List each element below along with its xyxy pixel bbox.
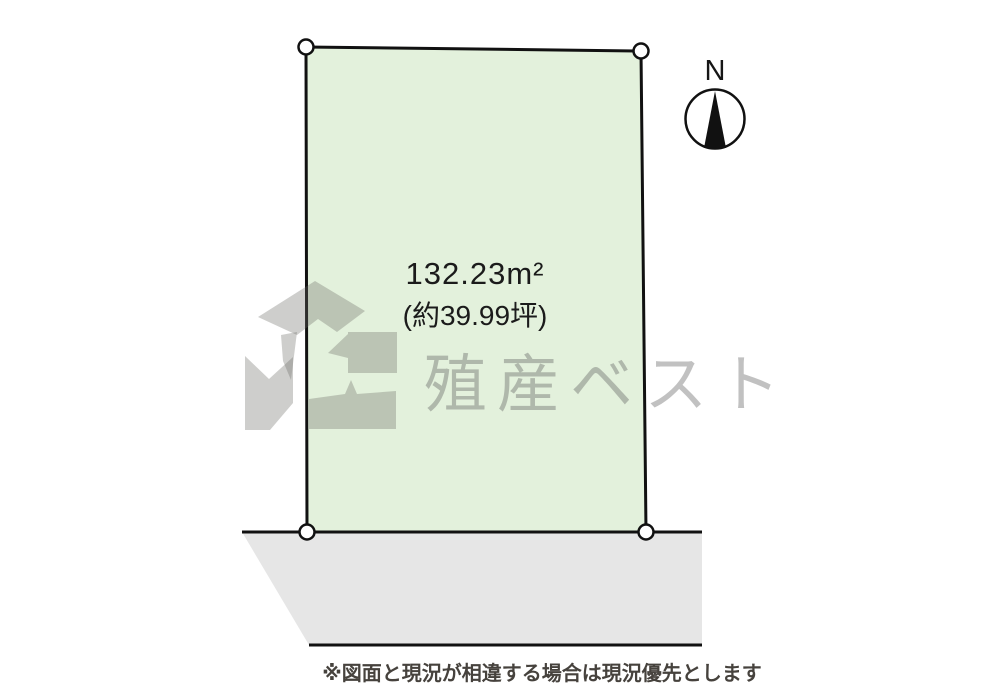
compass-north-label: N [690,55,740,88]
boundary-point-bottom-left [300,525,315,540]
road-surface [242,532,702,645]
land-plot-diagram-page: 132.23m² (約39.99坪) N 殖産ベスト ※図面と現況が相違する場合… [0,0,1000,700]
area-label-m2: 132.23m² [275,256,675,292]
disclaimer-note: ※図面と現況が相違する場合は現況優先とします [242,657,842,686]
boundary-point-top-right [634,44,649,59]
diagram-canvas [0,0,1000,700]
north-compass-icon [686,90,745,149]
boundary-point-bottom-right [639,525,654,540]
boundary-point-top-left [299,40,314,55]
road-area [242,532,702,645]
area-label-tsubo: (約39.99坪) [275,294,675,334]
